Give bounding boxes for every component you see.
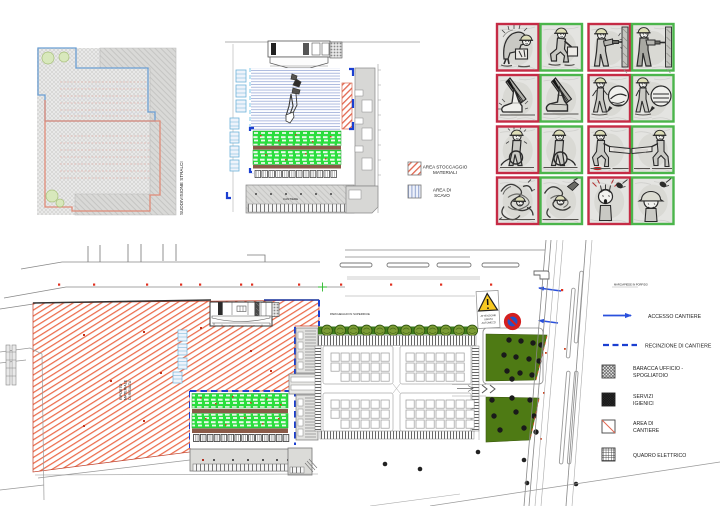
- svg-text:MATERIALE: MATERIALE: [124, 379, 128, 400]
- svg-text:AREA DI: AREA DI: [633, 421, 653, 427]
- svg-text:SPOGLIATOIO: SPOGLIATOIO: [633, 373, 668, 379]
- svg-text:CANTIERE: CANTIERE: [633, 428, 660, 434]
- svg-text:MARCIAPIEDE IN PORFIDO: MARCIAPIEDE IN PORFIDO: [614, 283, 648, 287]
- svg-text:DI RISULTA: DI RISULTA: [128, 380, 132, 400]
- svg-text:CANTIERE: CANTIERE: [283, 197, 298, 201]
- svg-text:AREA STOCCAGGIO: AREA STOCCAGGIO: [423, 165, 468, 170]
- svg-text:SCAVO: SCAVO: [434, 193, 450, 198]
- svg-text:QUADRO ELETTRICO: QUADRO ELETTRICO: [633, 453, 686, 459]
- svg-text:SUDDIVISIONE STRALCI: SUDDIVISIONE STRALCI: [179, 161, 184, 215]
- svg-text:PARCHEGGIO IN SUPERFICIE: PARCHEGGIO IN SUPERFICIE: [330, 312, 370, 316]
- svg-text:AREA DI: AREA DI: [433, 188, 451, 193]
- svg-text:ACCESSO CANTIERE: ACCESSO CANTIERE: [648, 314, 702, 320]
- svg-text:RECINZIONE DI CANTIERE: RECINZIONE DI CANTIERE: [645, 344, 712, 350]
- svg-text:BARACCA UFFICIO -: BARACCA UFFICIO -: [633, 366, 683, 372]
- svg-text:RIPORTO: RIPORTO: [119, 384, 123, 400]
- svg-text:SERVIZI: SERVIZI: [633, 394, 653, 400]
- svg-text:IGIENICI: IGIENICI: [633, 401, 654, 407]
- svg-text:MATERIALI: MATERIALI: [433, 170, 457, 175]
